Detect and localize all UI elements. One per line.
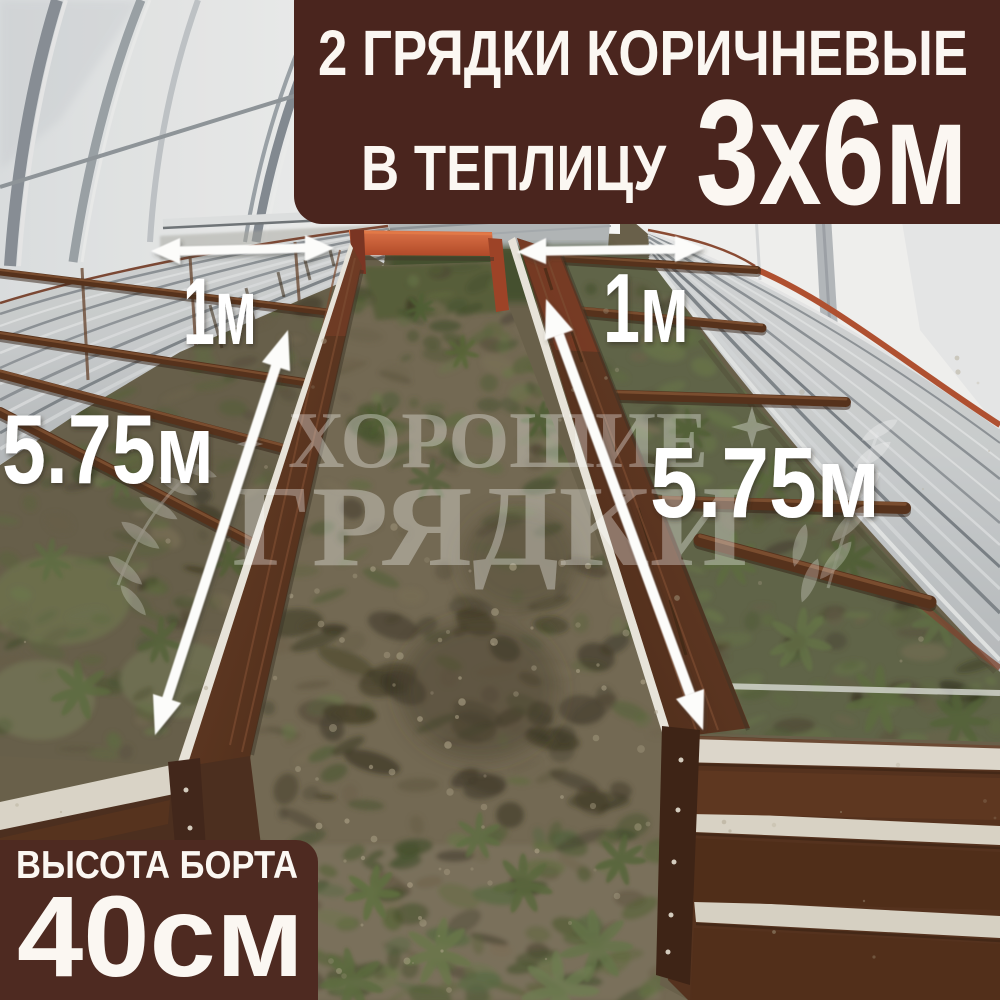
svg-text:5.75м: 5.75м <box>650 427 880 539</box>
svg-text:5.75м: 5.75м <box>2 394 214 504</box>
svg-text:В ТЕПЛИЦУ: В ТЕПЛИЦУ <box>361 132 667 204</box>
svg-text:1м: 1м <box>603 253 689 363</box>
svg-text:3х6м: 3х6м <box>696 68 968 236</box>
svg-text:1м: 1м <box>183 259 257 365</box>
svg-text:40см: 40см <box>17 873 304 1000</box>
